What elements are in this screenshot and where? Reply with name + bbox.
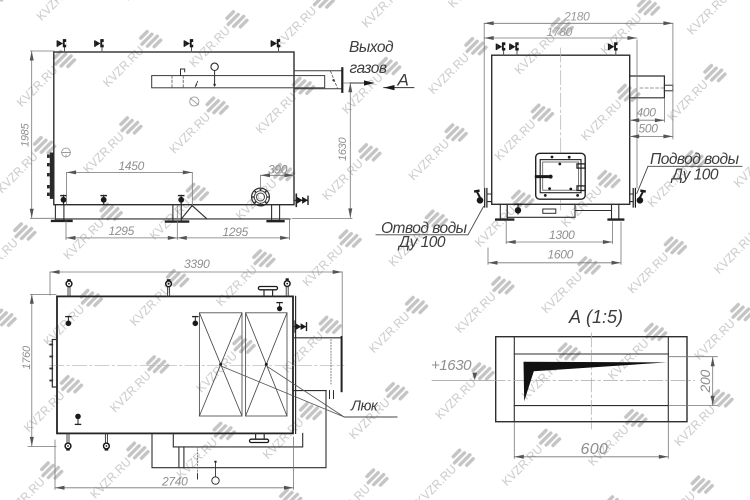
- svg-text:2740: 2740: [161, 474, 188, 488]
- svg-text:1985: 1985: [20, 123, 32, 147]
- svg-text:1780: 1780: [547, 25, 573, 39]
- svg-text:+1630: +1630: [431, 357, 472, 374]
- svg-text:Ду 100: Ду 100: [670, 167, 719, 184]
- svg-text:1600: 1600: [548, 248, 574, 262]
- svg-text:А (1:5): А (1:5): [568, 307, 623, 327]
- svg-text:600: 600: [581, 441, 609, 458]
- svg-text:390: 390: [268, 162, 288, 176]
- svg-text:1450: 1450: [119, 159, 145, 173]
- svg-text:3390: 3390: [184, 257, 210, 271]
- svg-text:1630: 1630: [337, 137, 349, 161]
- svg-text:газов: газов: [350, 60, 387, 77]
- svg-text:200: 200: [697, 370, 713, 394]
- svg-text:2180: 2180: [563, 10, 590, 24]
- svg-text:1295: 1295: [223, 225, 249, 239]
- svg-text:Подвод воды: Подвод воды: [650, 151, 740, 168]
- svg-text:400: 400: [637, 105, 657, 119]
- svg-text:1295: 1295: [109, 224, 135, 238]
- svg-text:Люк: Люк: [350, 399, 379, 415]
- svg-text:Ду 100: Ду 100: [397, 234, 446, 251]
- svg-text:1300: 1300: [549, 228, 575, 242]
- svg-text:1760: 1760: [21, 345, 33, 369]
- svg-text:А: А: [397, 71, 409, 90]
- svg-text:Выход: Выход: [349, 39, 394, 56]
- svg-text:500: 500: [639, 122, 659, 136]
